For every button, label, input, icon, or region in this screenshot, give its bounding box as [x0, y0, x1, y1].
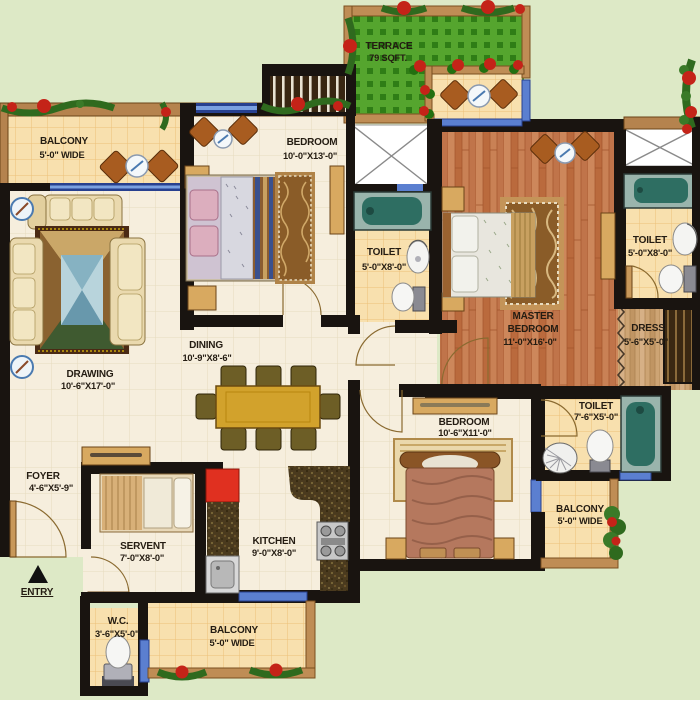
svg-text:10'-0"X13'-0": 10'-0"X13'-0": [283, 151, 337, 161]
svg-text:TOILET: TOILET: [579, 401, 613, 412]
svg-text:W.C.: W.C.: [108, 616, 129, 627]
svg-text:5'-0" WIDE: 5'-0" WIDE: [210, 638, 255, 648]
svg-text:DRESS: DRESS: [631, 323, 665, 334]
svg-text:9'-0"X8'-0": 9'-0"X8'-0": [252, 548, 296, 558]
svg-text:TERRACE: TERRACE: [366, 41, 413, 52]
svg-text:10'-6"X17'-0": 10'-6"X17'-0": [61, 381, 115, 391]
svg-text:BEDROOM: BEDROOM: [287, 137, 338, 148]
svg-text:BALCONY: BALCONY: [210, 625, 259, 636]
svg-text:10'-6"X11'-0": 10'-6"X11'-0": [438, 428, 492, 438]
svg-text:5'-6"X5'-0": 5'-6"X5'-0": [624, 337, 668, 347]
svg-text:10'-9"X8'-6": 10'-9"X8'-6": [182, 353, 231, 363]
svg-text:ENTRY: ENTRY: [21, 587, 54, 598]
svg-text:MASTER: MASTER: [512, 311, 554, 322]
svg-text:BALCONY: BALCONY: [40, 136, 89, 147]
svg-text:5'-0" WIDE: 5'-0" WIDE: [40, 150, 85, 160]
svg-text:TOILET: TOILET: [633, 235, 667, 246]
svg-text:11'-0"X16'-0": 11'-0"X16'-0": [503, 337, 557, 347]
svg-text:4'-6"X5'-9": 4'-6"X5'-9": [29, 483, 73, 493]
svg-text:BEDROOM: BEDROOM: [508, 324, 559, 335]
svg-text:FOYER: FOYER: [26, 471, 60, 482]
svg-text:5'-0"X8'-0": 5'-0"X8'-0": [362, 262, 406, 272]
svg-text:DRAWING: DRAWING: [67, 369, 114, 380]
svg-text:BEDROOM: BEDROOM: [439, 417, 490, 428]
svg-text:79 SQFT.: 79 SQFT.: [369, 53, 407, 63]
svg-text:5'-0" WIDE: 5'-0" WIDE: [558, 516, 603, 526]
svg-text:5'-0"X8'-0": 5'-0"X8'-0": [628, 248, 672, 258]
svg-text:KITCHEN: KITCHEN: [252, 536, 295, 547]
svg-text:DINING: DINING: [189, 340, 223, 351]
svg-text:SERVENT: SERVENT: [120, 541, 166, 552]
svg-text:3'-6"X5'-0": 3'-6"X5'-0": [95, 629, 139, 639]
svg-text:7'-6"X5'-0": 7'-6"X5'-0": [574, 412, 618, 422]
svg-text:BALCONY: BALCONY: [556, 504, 605, 515]
svg-text:TOILET: TOILET: [367, 247, 401, 258]
svg-text:7'-0"X8'-0": 7'-0"X8'-0": [120, 553, 164, 563]
